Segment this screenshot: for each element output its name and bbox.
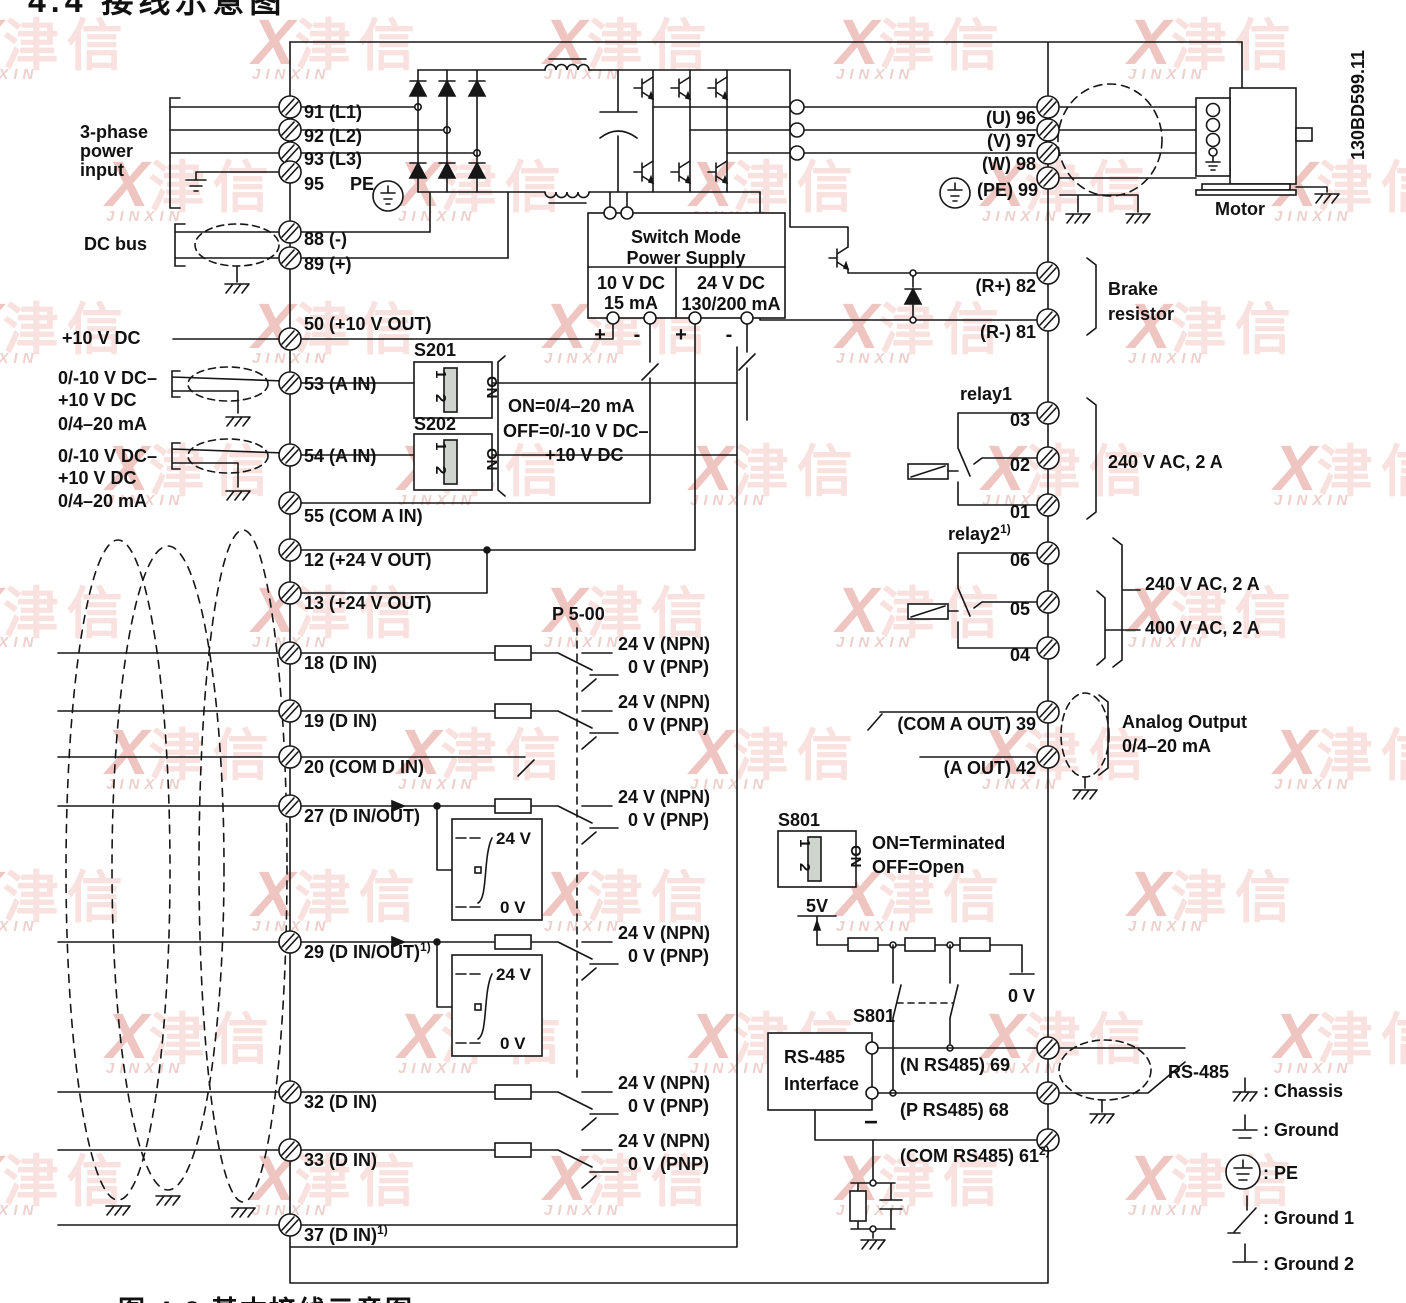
terminal-19-label: 19 (D IN): [304, 711, 377, 731]
analog-output-label-1: Analog Output: [1122, 712, 1247, 732]
terminal-06-label: 06: [1010, 550, 1030, 570]
din18-pnp: 0 V (PNP): [628, 657, 709, 677]
ain2-range-3: 0/4–20 mA: [58, 491, 147, 511]
smps-minus2: -: [726, 324, 733, 346]
terminal-99-label: (PE) 99: [977, 180, 1038, 200]
terminal-93-label: 93 (L3): [304, 149, 362, 169]
motor-assembly: [1058, 84, 1339, 223]
terminal-95-label: 95: [304, 174, 324, 194]
terminal-81-label: (R-) 81: [980, 322, 1036, 342]
minus-sign: −: [864, 1109, 878, 1136]
dip-switch-s801[interactable]: [778, 831, 864, 887]
terminal-37-label: 37 (D IN)1): [304, 1223, 388, 1245]
pe-symbol-95: [373, 181, 403, 211]
brake-label-2: resistor: [1108, 304, 1174, 324]
rs485-box-label-2: Interface: [784, 1074, 859, 1094]
terminal-02-label: 02: [1010, 455, 1030, 475]
dc-bus-label: DC bus: [84, 234, 147, 254]
s201-label: S201: [414, 340, 456, 360]
inverter: [634, 70, 1037, 192]
terminal-33-label: 33 (D IN): [304, 1150, 377, 1170]
figure-caption: 图 4-2 基本接线示意图: [118, 1289, 414, 1303]
rectifier-bridge: [410, 70, 485, 192]
terminal-61-label: (COM RS485) 612): [900, 1144, 1050, 1166]
terminal-12-label: 12 (+24 V OUT): [304, 550, 432, 570]
terminal-18-label: 18 (D IN): [304, 653, 377, 673]
din27-npn: 24 V (NPN): [618, 787, 710, 807]
rs485-box-label-1: RS-485: [784, 1047, 845, 1067]
pe-symbol-99: [940, 178, 970, 208]
smps-plus2: +: [675, 324, 687, 346]
smps-24v-label: 24 V DC: [697, 273, 765, 293]
s801-label: S801: [778, 810, 820, 830]
three-phase-label-3: input: [80, 160, 124, 180]
ain2-range-2: +10 V DC: [58, 468, 137, 488]
terminal-54-label: 54 (A IN): [304, 446, 376, 466]
terminal-13-label: 13 (+24 V OUT): [304, 593, 432, 613]
analog-output-label-2: 0/4–20 mA: [1122, 736, 1211, 756]
relay2-rating-400-label: 400 V AC, 2 A: [1145, 618, 1260, 638]
legend-symbols: [1226, 1078, 1260, 1262]
terminal-69-label: (N RS485) 69: [900, 1055, 1010, 1075]
dio27-0v-label: 0 V: [500, 898, 526, 917]
din32-pnp: 0 V (PNP): [628, 1096, 709, 1116]
ain1-range-1: 0/-10 V DC–: [58, 368, 157, 388]
terminal-27-label: 27 (D IN/OUT): [304, 806, 420, 826]
doc-code-vertical: 130BD599.11: [1348, 50, 1368, 160]
terminal-05-label: 05: [1010, 599, 1030, 619]
relay1-label: relay1: [960, 384, 1012, 404]
p500-label: P 5-00: [552, 604, 605, 624]
three-phase-label-1: 3-phase: [80, 122, 148, 142]
legend-pe-label: : PE: [1263, 1163, 1298, 1183]
terminal-88-label: 88 (-): [304, 229, 347, 249]
terminal-97-label: (V) 97: [987, 131, 1036, 151]
terminal-03-label: 03: [1010, 410, 1030, 430]
wiring-diagram-canvas: 1 2 ON: [0, 0, 1406, 1303]
legend-chassis-label: : Chassis: [1263, 1081, 1343, 1101]
terminal-91-label: 91 (L1): [304, 102, 362, 122]
s202-label: S202: [414, 414, 456, 434]
din19-pnp: 0 V (PNP): [628, 715, 709, 735]
terminal-96-label: (U) 96: [986, 108, 1036, 128]
terminal-95-pe-label: PE: [350, 174, 374, 194]
dip-switch-s201[interactable]: [414, 362, 500, 418]
ain2-range-1: 0/-10 V DC–: [58, 446, 157, 466]
dip-switch-s202[interactable]: [414, 434, 500, 490]
s20x-off-note: OFF=0/-10 V DC–: [503, 421, 649, 441]
terminal-68-label: (P RS485) 68: [900, 1100, 1009, 1120]
relay2-rating-240-label: 240 V AC, 2 A: [1145, 574, 1260, 594]
v0-label: 0 V: [1008, 986, 1035, 1006]
dio29-0v-label: 0 V: [500, 1034, 526, 1053]
legend-ground-label: : Ground: [1263, 1120, 1339, 1140]
three-phase-label-2: power: [80, 141, 133, 161]
terminal-55-label: 55 (COM A IN): [304, 506, 423, 526]
smps-15ma-label: 15 mA: [604, 293, 658, 313]
smps-10v-label: 10 V DC: [597, 273, 665, 293]
ain1-range-2: +10 V DC: [58, 390, 137, 410]
smps-130ma-label: 130/200 mA: [681, 294, 780, 314]
terminal-92-label: 92 (L2): [304, 126, 362, 146]
terminal-53-label: 53 (A IN): [304, 374, 376, 394]
wiring-diagram-page: X津信JINXINX津信JINXINX津信JINXINX津信JINXINX津信J…: [0, 0, 1406, 1303]
din29-npn: 24 V (NPN): [618, 923, 710, 943]
diagram-labels: 3-phase power input DC bus +10 V DC 0/-1…: [58, 50, 1368, 1274]
terminal-89-label: 89 (+): [304, 254, 352, 274]
terminal-01-label: 01: [1010, 502, 1030, 522]
relay1-rating-label: 240 V AC, 2 A: [1108, 452, 1223, 472]
terminal-39-label: (COM A OUT) 39: [897, 714, 1036, 734]
din19-npn: 24 V (NPN): [618, 692, 710, 712]
ain1-range-3: 0/4–20 mA: [58, 414, 147, 434]
s20x-on-note: ON=0/4–20 mA: [508, 396, 635, 416]
terminal-98-label: (W) 98: [982, 154, 1036, 174]
din29-pnp: 0 V (PNP): [628, 946, 709, 966]
smps-plus1: +: [594, 324, 606, 346]
dio27-24v-label: 24 V: [496, 829, 532, 848]
v5-label: 5V: [806, 896, 828, 916]
din33-pnp: 0 V (PNP): [628, 1154, 709, 1174]
plus10-label: +10 V DC: [62, 328, 141, 348]
din18-npn: 24 V (NPN): [618, 634, 710, 654]
motor-label: Motor: [1215, 199, 1265, 219]
din27-pnp: 0 V (PNP): [628, 810, 709, 830]
din33-npn: 24 V (NPN): [618, 1131, 710, 1151]
terminal-29-label: 29 (D IN/OUT)1): [304, 940, 431, 962]
terminal-42-label: (A OUT) 42: [944, 758, 1036, 778]
analog-output-wiring: [868, 693, 1109, 799]
rs485-cable-label: RS-485: [1168, 1062, 1229, 1082]
din32-npn: 24 V (NPN): [618, 1073, 710, 1093]
terminal-04-label: 04: [1010, 645, 1030, 665]
terminal-50-label: 50 (+10 V OUT): [304, 314, 432, 334]
terminal-32-label: 32 (D IN): [304, 1092, 377, 1112]
brake-label-1: Brake: [1108, 279, 1158, 299]
legend-ground1-label: : Ground 1: [1263, 1208, 1354, 1228]
smps-title-1: Switch Mode: [631, 227, 741, 247]
page-title: 4.4 接线示意图: [28, 0, 286, 22]
legend-ground2-label: : Ground 2: [1263, 1254, 1354, 1274]
s20x-off-note-2: +10 V DC: [545, 445, 624, 465]
s801-off-note: OFF=Open: [872, 857, 965, 877]
terminal-20-label: 20 (COM D IN): [304, 757, 424, 777]
dio29-24v-label: 24 V: [496, 965, 532, 984]
s801-on-note: ON=Terminated: [872, 833, 1005, 853]
s801-switch-label: S801: [853, 1006, 895, 1026]
terminal-82-label: (R+) 82: [975, 276, 1036, 296]
relay1-wiring: [908, 398, 1096, 519]
relay2-label: relay21): [948, 522, 1011, 544]
smps-title-2: Power Supply: [626, 248, 745, 268]
smps-minus1: -: [634, 324, 641, 346]
